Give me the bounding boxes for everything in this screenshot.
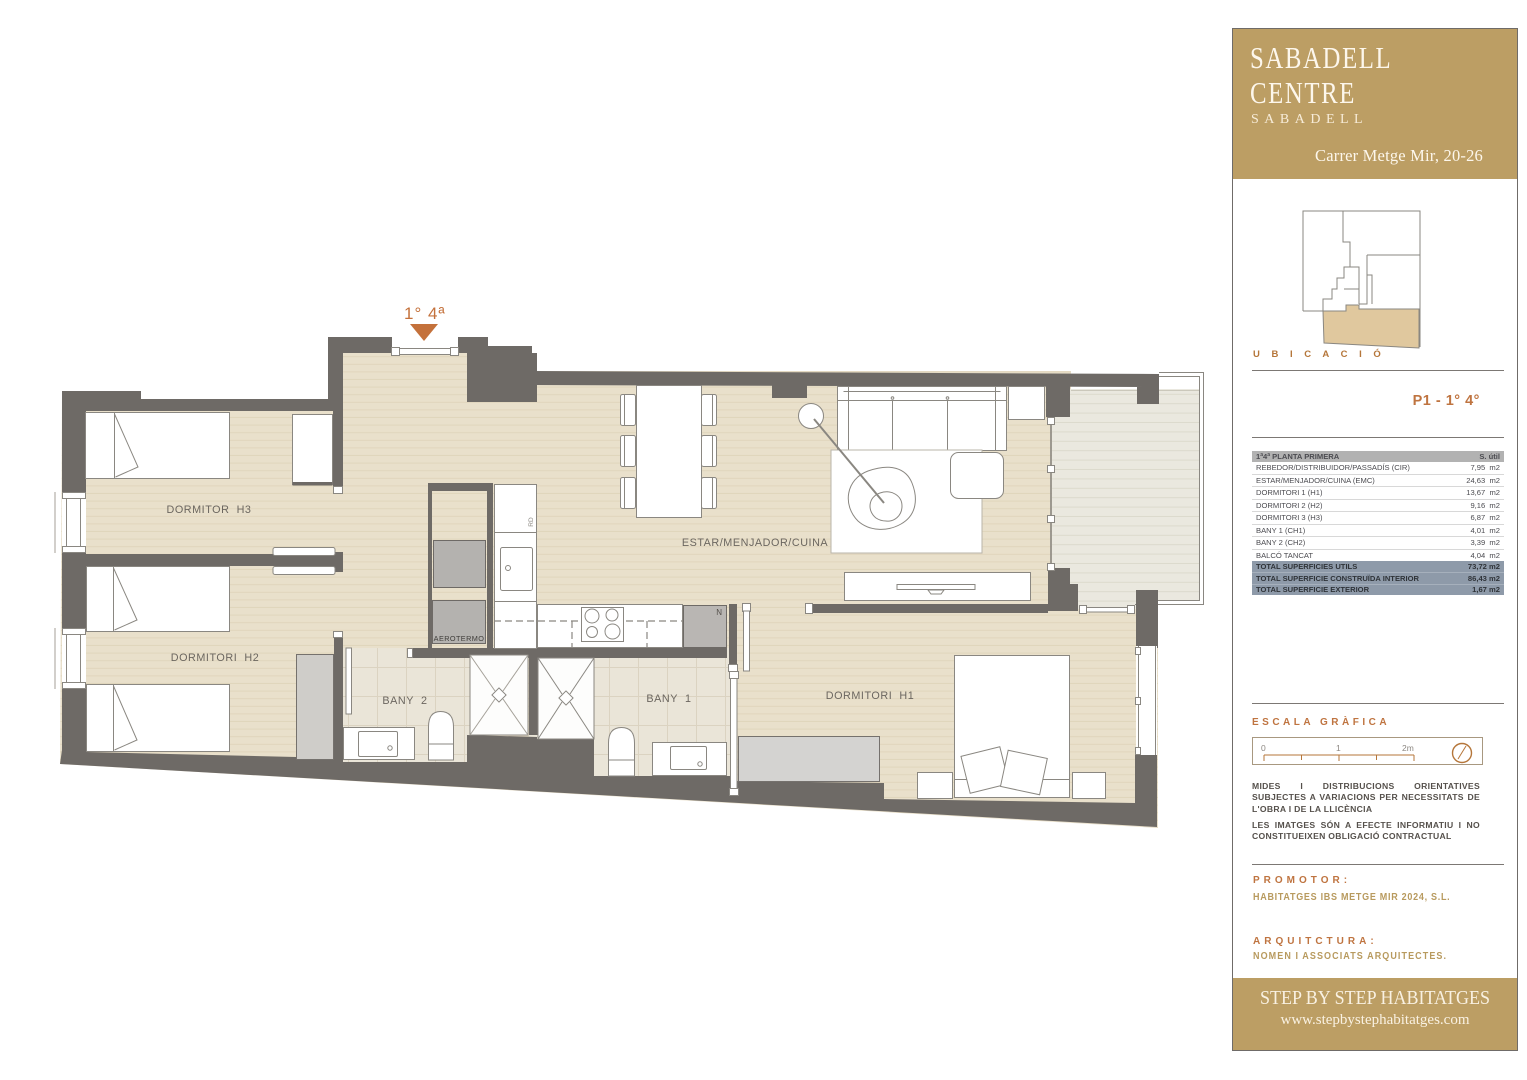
svg-text:DORMITOR H3: DORMITOR H3 bbox=[167, 504, 252, 516]
svg-text:0: 0 bbox=[1261, 743, 1266, 753]
svg-text:U B I C A C I Ó: U B I C A C I Ó bbox=[1253, 348, 1385, 360]
svg-text:BANY 2: BANY 2 bbox=[382, 695, 427, 707]
svg-text:BANY 1: BANY 1 bbox=[646, 693, 691, 705]
svg-text:1° 4ª: 1° 4ª bbox=[404, 304, 446, 323]
svg-text:1: 1 bbox=[1336, 743, 1341, 753]
svg-text:RD: RD bbox=[528, 517, 535, 527]
svg-text:2m: 2m bbox=[1402, 743, 1414, 753]
svg-text:N: N bbox=[716, 608, 722, 617]
svg-text:DORMITORI H1: DORMITORI H1 bbox=[826, 690, 915, 702]
svg-text:ESTAR/MENJADOR/CUINA: ESTAR/MENJADOR/CUINA bbox=[682, 537, 829, 549]
svg-text:DORMITORI H2: DORMITORI H2 bbox=[171, 652, 260, 664]
svg-text:AEROTERMO: AEROTERMO bbox=[434, 634, 485, 643]
